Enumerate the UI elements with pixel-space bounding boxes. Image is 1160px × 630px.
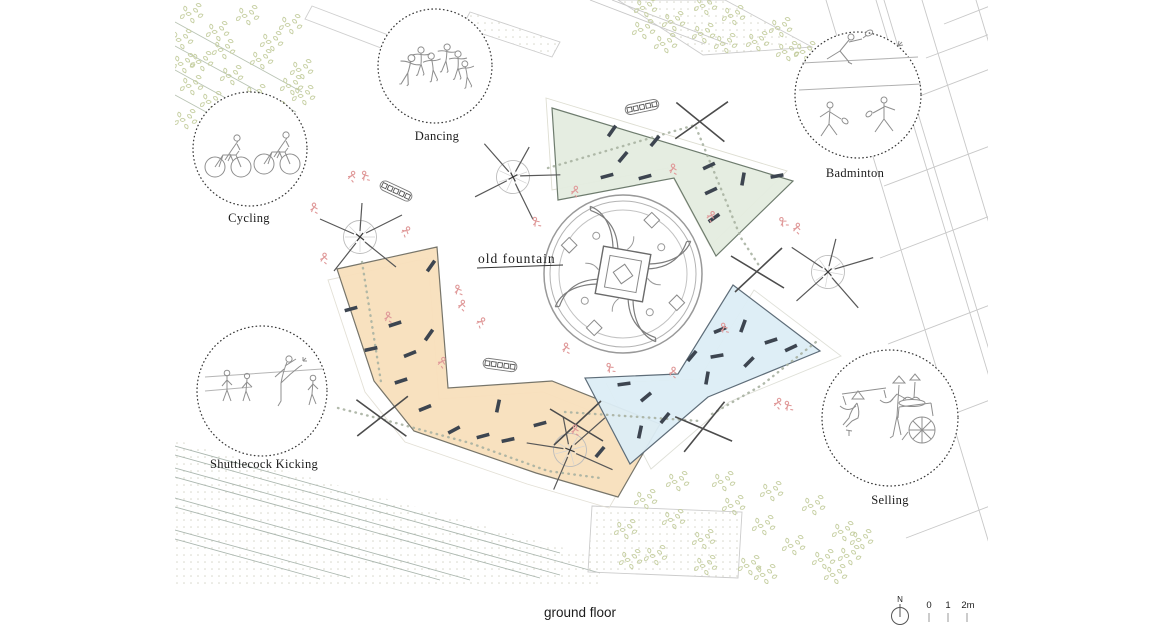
leaf-cluster-icon	[219, 65, 243, 86]
leaf-cluster-icon	[169, 29, 193, 50]
pink-figure-icon	[792, 222, 801, 234]
context-planter-bottomcenter	[588, 471, 874, 585]
cycling-circle	[193, 92, 307, 206]
pink-figure-icon	[475, 316, 487, 328]
site-plan: Cycling Dancing Badminton Shuttlecock Ki…	[0, 0, 1160, 630]
leaf-cluster-icon	[278, 14, 302, 35]
vignette-badminton	[795, 29, 921, 158]
context-band-topcenter	[462, 0, 818, 62]
leaf-cluster-icon	[179, 75, 203, 96]
scale-tick-0: 0	[926, 600, 931, 611]
label-cycling: Cycling	[228, 211, 270, 225]
label-old-fountain: old fountain	[478, 251, 556, 266]
scale-tick-1: 1	[945, 600, 950, 611]
floor-title: ground floor	[544, 605, 617, 620]
leaf-cluster-icon	[711, 471, 735, 492]
leaf-cluster-icon	[781, 535, 805, 556]
crossing-mark-icon	[731, 248, 784, 292]
bead-chain-icon	[624, 99, 659, 116]
leaf-cluster-icon	[289, 59, 313, 80]
pink-figure-icon	[773, 397, 783, 409]
leaf-cluster-icon	[831, 521, 855, 542]
leaf-cluster-icon	[823, 564, 847, 585]
label-badminton: Badminton	[826, 166, 885, 180]
pink-figure-icon	[311, 203, 318, 213]
pink-figure-icon	[778, 216, 789, 229]
scale-bar: 0 1 2m	[926, 600, 974, 622]
bead-chain-icon	[482, 358, 517, 373]
vignette-selling	[822, 350, 958, 486]
plan-sheet: Cycling Dancing Badminton Shuttlecock Ki…	[0, 0, 1160, 630]
label-shuttlecock: Shuttlecock Kicking	[210, 457, 319, 471]
pink-figure-icon	[360, 170, 369, 182]
bead-chain-icon	[378, 179, 413, 202]
pink-figure-icon	[400, 225, 412, 237]
leaf-cluster-icon	[259, 31, 283, 52]
pink-figure-icon	[320, 253, 329, 264]
leaf-cluster-icon	[811, 549, 835, 570]
leaf-cluster-icon	[173, 109, 197, 130]
selling-circle	[822, 350, 958, 486]
scale-tick-2: 2m	[961, 600, 974, 611]
vignette-cycling	[193, 92, 307, 206]
pink-figure-icon	[563, 343, 570, 353]
shuttlecock-circle	[197, 326, 327, 456]
badminton-circle	[795, 32, 921, 158]
leaf-cluster-icon	[189, 51, 213, 72]
plan-area: Cycling Dancing Badminton Shuttlecock Ki…	[169, 0, 1160, 620]
tree-symbol	[783, 232, 876, 313]
leaf-cluster-icon	[837, 545, 861, 566]
leaf-cluster-icon	[759, 481, 783, 502]
north-indicator: N	[892, 595, 909, 625]
fountain-annotation: old fountain	[477, 251, 563, 268]
leaf-cluster-icon	[179, 3, 203, 24]
leaf-cluster-icon	[279, 75, 303, 96]
pink-figure-icon	[454, 285, 463, 296]
fountain	[544, 195, 702, 353]
label-dancing: Dancing	[415, 129, 460, 143]
leaf-cluster-icon	[205, 21, 229, 42]
pink-figure-icon	[347, 170, 357, 182]
scale-ticks	[929, 613, 967, 622]
leaf-cluster-icon	[737, 555, 761, 576]
pink-figure-icon	[783, 400, 793, 412]
vignette-dancing	[378, 9, 492, 123]
footer: ground floor N 0 1 2m	[544, 595, 975, 625]
label-selling: Selling	[871, 493, 909, 507]
tree-symbol	[462, 129, 565, 225]
pink-figure-icon	[457, 299, 466, 311]
north-label: N	[897, 595, 903, 604]
leaf-cluster-icon	[801, 495, 825, 516]
leaf-cluster-icon	[249, 49, 273, 70]
leaf-cluster-icon	[235, 5, 259, 26]
pink-figure-icon	[605, 362, 616, 374]
dancing-circle	[378, 9, 492, 123]
vignette-shuttlecock	[197, 326, 327, 456]
leaf-cluster-icon	[665, 471, 689, 492]
leaf-cluster-icon	[633, 489, 657, 510]
leaf-cluster-icon	[751, 515, 775, 536]
